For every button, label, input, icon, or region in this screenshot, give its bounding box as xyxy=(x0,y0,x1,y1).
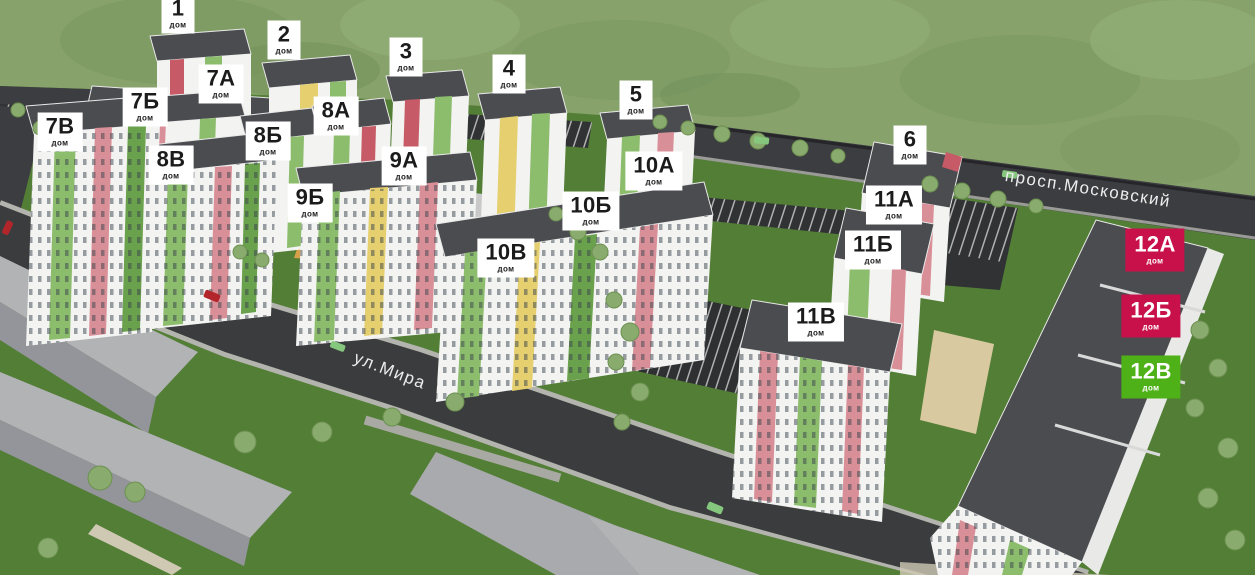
building-label-sub: дом xyxy=(501,82,518,90)
building-number: 5 xyxy=(628,84,645,106)
building-number: 8А xyxy=(322,100,351,122)
building-label-sub: дом xyxy=(853,258,893,266)
building-label-sub: дом xyxy=(157,173,186,181)
building-label-2[interactable]: 2дом xyxy=(268,21,301,60)
building-label-5[interactable]: 5дом xyxy=(620,81,653,120)
building-number: 9А xyxy=(390,150,419,172)
building-label-1[interactable]: 1дом xyxy=(162,0,195,34)
building-number: 4 xyxy=(501,58,518,80)
building-number: 2 xyxy=(276,24,293,46)
building-label-11v[interactable]: 11Вдом xyxy=(788,303,844,342)
building-label-7v[interactable]: 7Вдом xyxy=(38,113,83,152)
building-number: 12В xyxy=(1130,361,1171,383)
building-label-sub: дом xyxy=(628,108,645,116)
building-label-12a[interactable]: 12Адом xyxy=(1125,229,1184,272)
building-label-10v[interactable]: 10Вдом xyxy=(477,239,534,278)
building-label-sub: дом xyxy=(1130,385,1171,393)
building-label-sub: дом xyxy=(874,213,914,221)
building-number: 8В xyxy=(157,149,186,171)
building-label-9b[interactable]: 9Бдом xyxy=(288,184,333,223)
building-number: 10А xyxy=(633,155,674,177)
building-number: 12А xyxy=(1134,234,1175,256)
building-number: 7Б xyxy=(131,91,160,113)
building-label-sub: дом xyxy=(796,330,836,338)
building-label-sub: дом xyxy=(485,266,526,274)
building-number: 10Б xyxy=(570,195,611,217)
building-label-9a[interactable]: 9Адом xyxy=(382,147,427,186)
building-label-10a[interactable]: 10Адом xyxy=(625,152,682,191)
building-label-sub: дом xyxy=(633,179,674,187)
building-label-3[interactable]: 3дом xyxy=(390,38,423,77)
building-label-10b[interactable]: 10Бдом xyxy=(562,192,619,231)
building-number: 7А xyxy=(207,68,236,90)
building-label-11b[interactable]: 11Бдом xyxy=(845,231,901,270)
building-label-sub: дом xyxy=(570,219,611,227)
building-number: 1 xyxy=(170,0,187,20)
building-label-12v[interactable]: 12Вдом xyxy=(1121,356,1180,399)
masterplan-scene: 1дом2дом3дом4дом5дом6дом7Адом7Бдом7Вдом8… xyxy=(0,0,1255,575)
building-number: 6 xyxy=(902,129,919,151)
building-label-sub: дом xyxy=(398,65,415,73)
building-number: 11А xyxy=(874,189,914,211)
building-label-7a[interactable]: 7Адом xyxy=(199,65,244,104)
building-label-4[interactable]: 4дом xyxy=(493,55,526,94)
building-label-7b[interactable]: 7Бдом xyxy=(123,88,168,127)
building-number: 12Б xyxy=(1130,300,1171,322)
building-number: 8Б xyxy=(254,125,283,147)
building-label-sub: дом xyxy=(296,211,325,219)
building-label-8a[interactable]: 8Адом xyxy=(314,97,359,136)
building-number: 11В xyxy=(796,306,836,328)
building-number: 11Б xyxy=(853,234,893,256)
building-label-sub: дом xyxy=(131,115,160,123)
building-label-11a[interactable]: 11Адом xyxy=(866,186,922,225)
building-label-6[interactable]: 6дом xyxy=(894,126,927,165)
street-label-moskovsky: просп.Московский xyxy=(1004,166,1173,212)
building-label-sub: дом xyxy=(390,174,419,182)
building-number: 10В xyxy=(485,242,526,264)
building-label-sub: дом xyxy=(170,22,187,30)
building-label-sub: дом xyxy=(46,140,75,148)
building-label-sub: дом xyxy=(1130,324,1171,332)
building-label-8b[interactable]: 8Бдом xyxy=(246,122,291,161)
building-label-12b[interactable]: 12Бдом xyxy=(1121,295,1180,338)
building-label-sub: дом xyxy=(276,48,293,56)
building-label-sub: дом xyxy=(902,153,919,161)
street-label-mira: ул.Мира xyxy=(351,348,429,394)
building-number: 9Б xyxy=(296,187,325,209)
building-label-8v[interactable]: 8Вдом xyxy=(149,146,194,185)
building-label-sub: дом xyxy=(1134,258,1175,266)
building-label-sub: дом xyxy=(322,124,351,132)
label-layer: 1дом2дом3дом4дом5дом6дом7Адом7Бдом7Вдом8… xyxy=(0,0,1255,575)
building-label-sub: дом xyxy=(254,149,283,157)
building-number: 3 xyxy=(398,41,415,63)
building-label-sub: дом xyxy=(207,92,236,100)
building-number: 7В xyxy=(46,116,75,138)
